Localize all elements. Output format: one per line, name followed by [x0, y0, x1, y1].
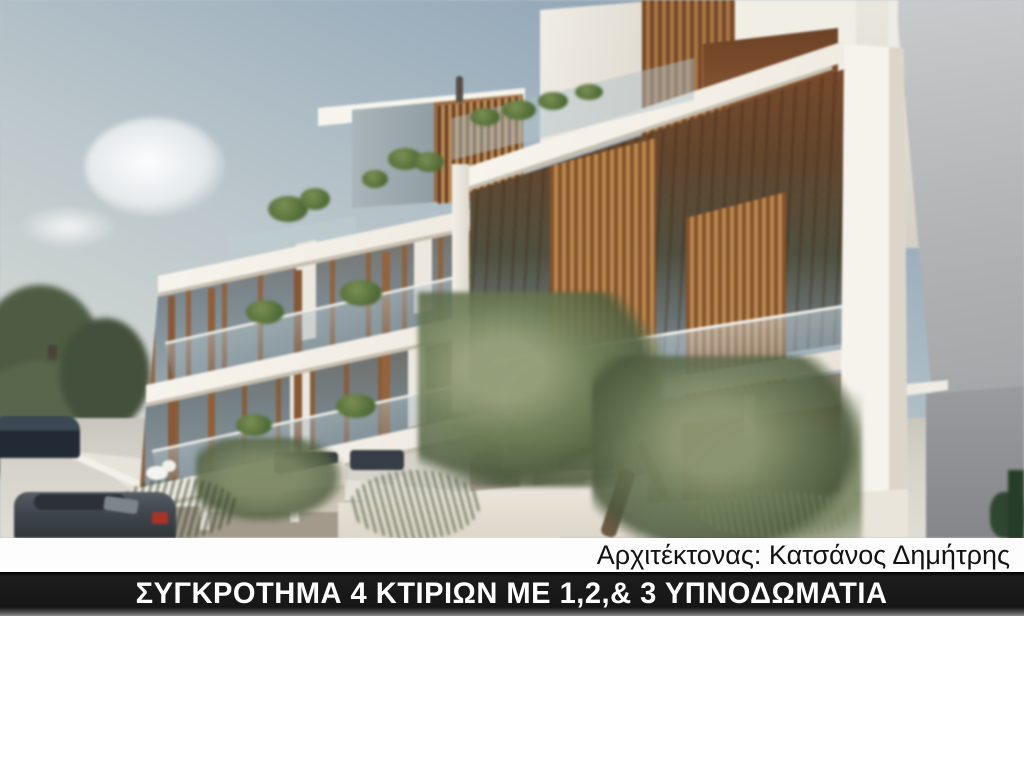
roof-plant — [575, 84, 603, 100]
roof-plant — [470, 108, 500, 126]
cloud — [18, 205, 118, 249]
footer: Premium Residences. CONTACT US: — [0, 616, 1024, 768]
hedge — [1008, 470, 1024, 538]
roof-plant — [502, 100, 536, 120]
architect-caption: Αρχιτέκτονας: Κατσάνος Δημήτρης — [597, 540, 1024, 571]
real-estate-flyer: Αρχιτέκτονας: Κατσάνος Δημήτρης ΣΥΓΚΡΟΤΗ… — [0, 0, 1024, 768]
parked-car — [0, 416, 80, 458]
roof-plant — [300, 188, 330, 210]
complex-banner: ΣΥΓΚΡΟΤΗΜΑ 4 ΚΤΙΡΙΩΝ ΜΕ 1,2,& 3 ΥΠΝΟΔΩΜΑ… — [0, 572, 1024, 616]
hero-render — [0, 0, 1024, 538]
parked-car — [350, 450, 404, 470]
roof-plant — [538, 92, 568, 110]
car-taillight — [152, 512, 168, 524]
balcony-plant — [340, 280, 382, 306]
balcony-plant — [336, 394, 376, 418]
ornamental-grass — [700, 490, 850, 538]
cloud — [85, 118, 225, 216]
person-on-roof — [456, 76, 463, 102]
background-tree — [60, 318, 150, 430]
render-scene — [0, 0, 1024, 538]
balcony-plant — [236, 414, 272, 436]
white-dog — [162, 460, 176, 472]
balcony-plant — [414, 152, 444, 172]
banner-text: ΣΥΓΚΡΟΤΗΜΑ 4 ΚΤΙΡΙΩΝ ΜΕ 1,2,& 3 ΥΠΝΟΔΩΜΑ… — [136, 577, 888, 611]
architect-caption-strip: Αρχιτέκτονας: Κατσάνος Δημήτρης — [0, 538, 1024, 572]
balcony-plant — [362, 170, 388, 188]
balcony-plant — [246, 300, 284, 324]
ornamental-grass — [350, 470, 480, 538]
